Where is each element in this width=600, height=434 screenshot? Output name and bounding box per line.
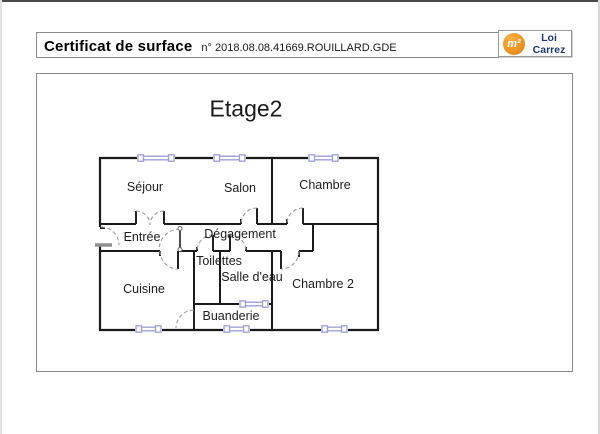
room-label-buanderie: Buanderie	[203, 309, 260, 323]
room-label-toilettes: Toilettes	[196, 254, 242, 268]
room-label-chambre: Chambre	[299, 178, 350, 192]
room-label-salon: Salon	[224, 181, 256, 195]
floor-plan-drawing	[0, 0, 600, 434]
room-label-salle-deau: Salle d'eau	[221, 270, 282, 284]
room-label-sejour: Séjour	[127, 180, 163, 194]
room-label-degagement: Dégagement	[204, 227, 276, 241]
room-label-entree: Entrée	[124, 230, 161, 244]
room-label-chambre2: Chambre 2	[292, 277, 354, 291]
room-label-cuisine: Cuisine	[123, 282, 165, 296]
